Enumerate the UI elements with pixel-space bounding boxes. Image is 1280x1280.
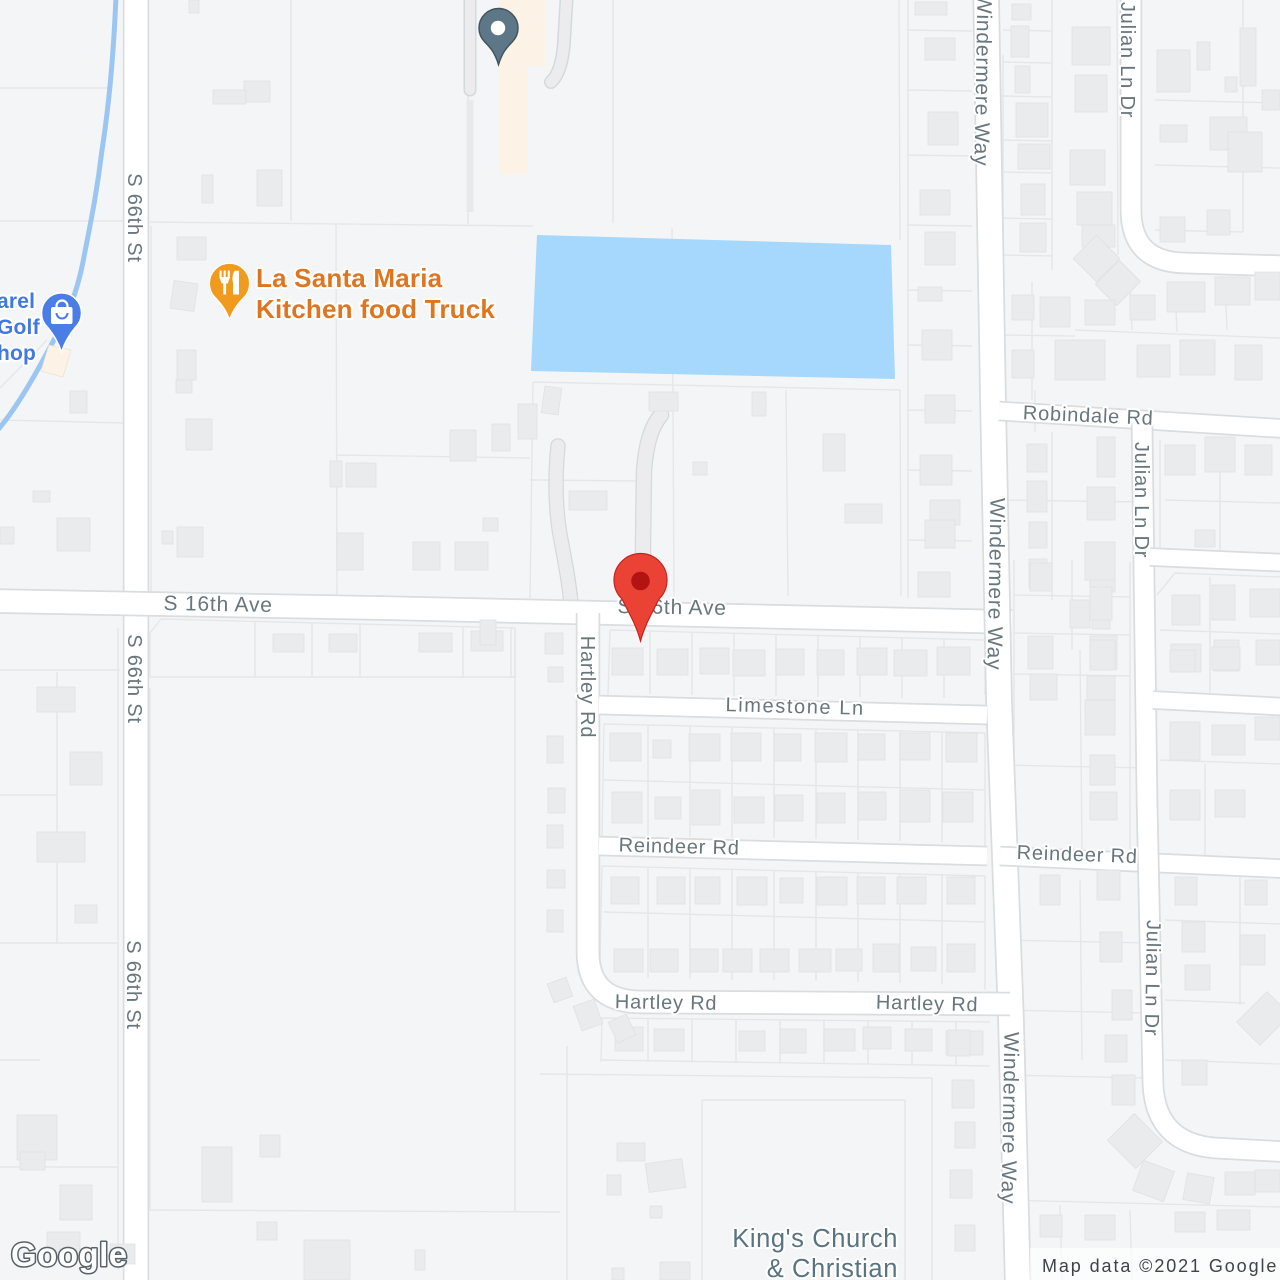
svg-text:Julian Ln Dr: Julian Ln Dr: [1140, 920, 1164, 1037]
svg-text:Windermere Way: Windermere Way: [969, 0, 995, 167]
svg-text:Windermere Way: Windermere Way: [982, 498, 1008, 671]
svg-text:Limestone Ln: Limestone Ln: [725, 694, 865, 720]
svg-text:arel: arel: [0, 290, 35, 313]
svg-text:S 66th St: S 66th St: [123, 634, 145, 723]
svg-text:Reindeer Rd: Reindeer Rd: [1016, 842, 1138, 868]
svg-text:Map data ©2021 Google: Map data ©2021 Google: [1042, 1256, 1278, 1276]
svg-text:Reindeer Rd: Reindeer Rd: [618, 834, 740, 859]
svg-text:& Christian: & Christian: [767, 1255, 898, 1280]
svg-text:Windermere Way: Windermere Way: [996, 1032, 1022, 1205]
svg-text:Hartley Rd: Hartley Rd: [576, 636, 598, 738]
svg-text:Julian Ln Dr: Julian Ln Dr: [1130, 442, 1152, 558]
svg-text:King's Church: King's Church: [732, 1225, 898, 1253]
svg-text:Hartley Rd: Hartley Rd: [876, 992, 979, 1017]
svg-text:Julian Ln Dr: Julian Ln Dr: [1116, 2, 1138, 118]
svg-text:Google: Google: [11, 1236, 128, 1273]
svg-text:S 66th St: S 66th St: [123, 173, 145, 262]
svg-text:hop: hop: [0, 342, 36, 365]
svg-text:Kitchen food Truck: Kitchen food Truck: [256, 294, 495, 324]
svg-text:Hartley Rd: Hartley Rd: [615, 991, 718, 1015]
svg-text:S 16th Ave: S 16th Ave: [163, 592, 273, 617]
svg-text:S 66th St: S 66th St: [122, 940, 144, 1029]
svg-text:La Santa Maria: La Santa Maria: [256, 263, 443, 293]
svg-text:Golf: Golf: [0, 316, 41, 339]
